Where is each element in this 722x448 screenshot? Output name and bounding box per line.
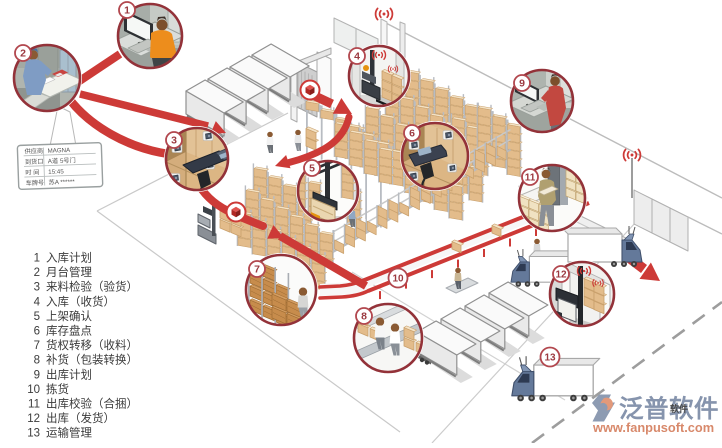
svg-text:www.fanpusoft.com: www.fanpusoft.com	[592, 420, 714, 435]
svg-text:4: 4	[354, 51, 360, 63]
svg-text:8: 8	[34, 355, 40, 367]
svg-text:7: 7	[34, 340, 40, 352]
svg-text:11: 11	[28, 399, 40, 411]
svg-text:2: 2	[34, 267, 40, 279]
svg-text:3: 3	[34, 282, 40, 294]
svg-text:8: 8	[361, 311, 367, 323]
svg-text:入库（收货）: 入库（收货）	[46, 294, 115, 308]
svg-text:到货口: 到货口	[25, 157, 44, 166]
svg-text:10: 10	[392, 274, 404, 285]
svg-text:泛普软件: 泛普软件	[619, 395, 719, 423]
svg-text:6: 6	[409, 128, 415, 140]
svg-text:7: 7	[254, 264, 260, 276]
svg-text:苏A ******: 苏A ******	[48, 178, 75, 187]
svg-text:10: 10	[27, 384, 40, 396]
svg-text:12: 12	[27, 413, 40, 425]
svg-text:上架确认: 上架确认	[46, 310, 92, 323]
svg-text:1: 1	[34, 253, 40, 265]
svg-text:软件: 软件	[670, 403, 688, 414]
svg-text:2: 2	[20, 48, 26, 60]
svg-text:13: 13	[544, 353, 556, 364]
svg-text:15:45: 15:45	[48, 168, 64, 176]
svg-text:时 间: 时 间	[25, 168, 39, 176]
svg-text:5: 5	[34, 311, 40, 323]
svg-text:车牌号: 车牌号	[25, 179, 44, 188]
svg-text:5: 5	[309, 163, 315, 175]
svg-text:出库（发货）: 出库（发货）	[46, 411, 115, 425]
svg-text:6: 6	[34, 326, 40, 338]
svg-text:1: 1	[124, 5, 130, 17]
svg-text:3: 3	[171, 135, 177, 147]
svg-text:11: 11	[525, 173, 536, 184]
svg-text:13: 13	[27, 428, 40, 440]
svg-text:9: 9	[34, 369, 40, 381]
svg-text:供应商: 供应商	[24, 147, 43, 156]
svg-text:库存盘点: 库存盘点	[46, 324, 92, 338]
svg-text:12: 12	[555, 270, 567, 281]
svg-text:出库校验（合捆）: 出库校验（合捆）	[46, 397, 138, 411]
svg-text:9: 9	[519, 78, 525, 90]
svg-text:拣货: 拣货	[46, 382, 69, 396]
svg-text:来料检验（验货）: 来料检验（验货）	[46, 280, 138, 294]
svg-text:A道 5号门: A道 5号门	[48, 156, 76, 165]
svg-text:出库计划: 出库计划	[46, 367, 92, 381]
svg-text:入库计划: 入库计划	[46, 251, 92, 265]
svg-text:运输管理: 运输管理	[46, 426, 92, 440]
svg-text:补货（包装转换）: 补货（包装转换）	[46, 353, 138, 367]
svg-text:4: 4	[34, 296, 41, 308]
svg-text:月台管理: 月台管理	[46, 265, 92, 279]
svg-text:货权转移（收料）: 货权转移（收料）	[46, 338, 138, 352]
svg-text:MAGNA: MAGNA	[47, 147, 71, 155]
